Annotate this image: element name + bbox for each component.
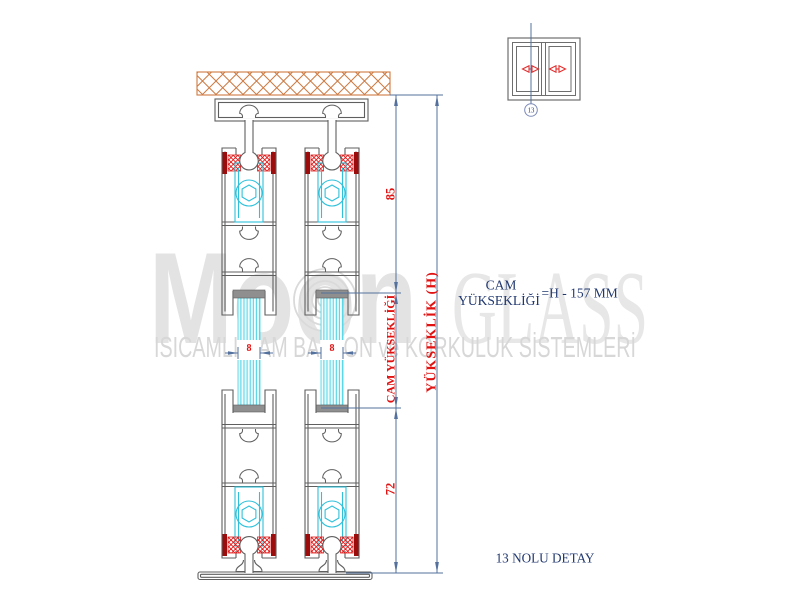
glass-width-label-left: 8 — [247, 343, 252, 354]
top-track-profile — [215, 99, 368, 121]
formula-line1: CAM — [486, 278, 517, 293]
detail-key-view: 13 — [508, 23, 580, 116]
dimension-label-yukseklik-h: YÜKSEKLİK (H) — [423, 271, 440, 393]
wall-hatch — [197, 72, 390, 95]
formula-line2: YÜKSEKLİĞİ — [458, 293, 540, 308]
formula-rhs: =H - 157 MM — [542, 286, 618, 301]
bottom-track-profile — [198, 572, 372, 580]
glass-width-label-right: 8 — [330, 343, 335, 354]
dimension-label-72: 72 — [384, 483, 398, 496]
detail-caption: 13 NOLU DETAY — [496, 551, 595, 566]
cad-drawing-page: Moon GLASS ISICAMLI CAM BALKON ve KORKUL… — [0, 0, 800, 600]
technical-drawing-canvas: Moon GLASS ISICAMLI CAM BALKON ve KORKUL… — [0, 0, 800, 600]
dimension-label-85: 85 — [384, 188, 398, 201]
detail-callout-number: 13 — [528, 108, 535, 115]
dimension-label-cam-yuksekligi: CAM YÜKSEKLİĞİ — [384, 294, 398, 403]
